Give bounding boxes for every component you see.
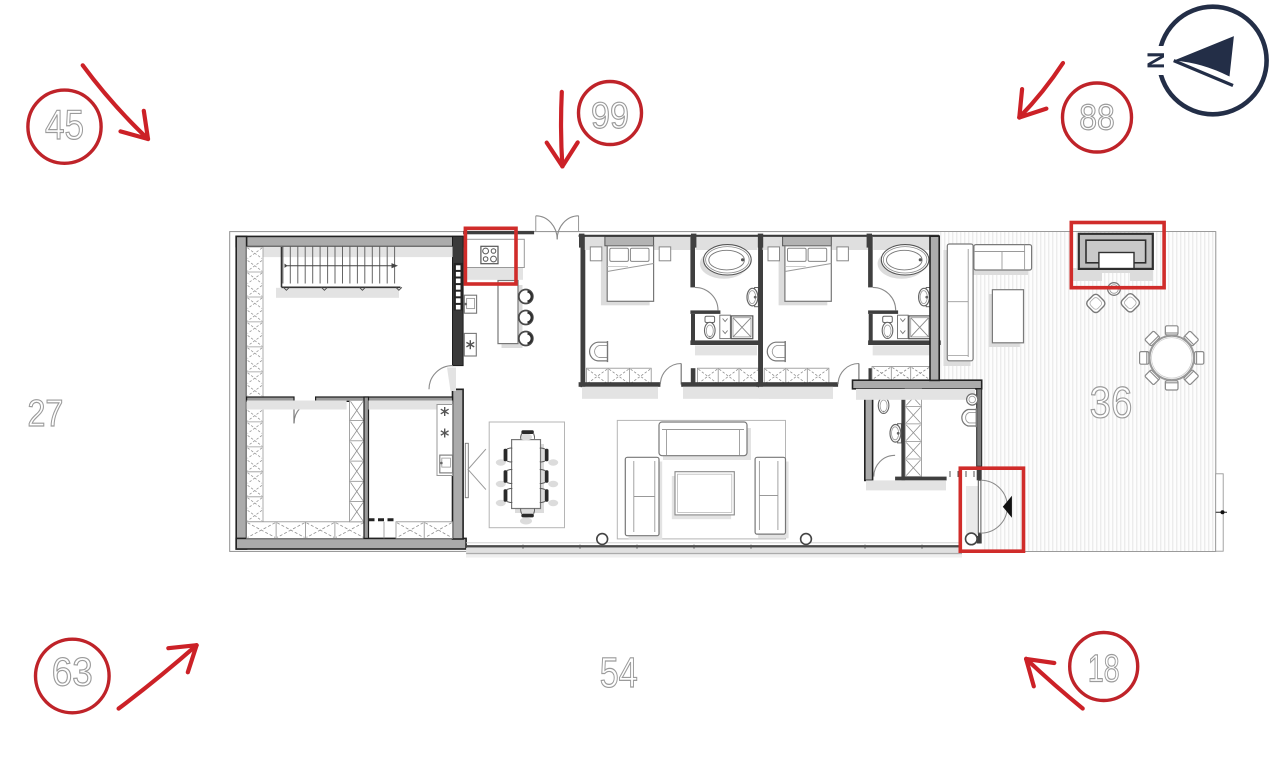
svg-text:54: 54 [600, 649, 638, 696]
svg-text:36: 36 [1090, 379, 1133, 428]
svg-text:63: 63 [52, 651, 93, 695]
svg-text:45: 45 [45, 101, 84, 148]
svg-text:27: 27 [28, 392, 64, 434]
svg-text:18: 18 [1088, 648, 1120, 691]
svg-text:88: 88 [1079, 96, 1115, 137]
svg-text:N: N [1143, 52, 1170, 69]
svg-text:99: 99 [591, 95, 629, 136]
